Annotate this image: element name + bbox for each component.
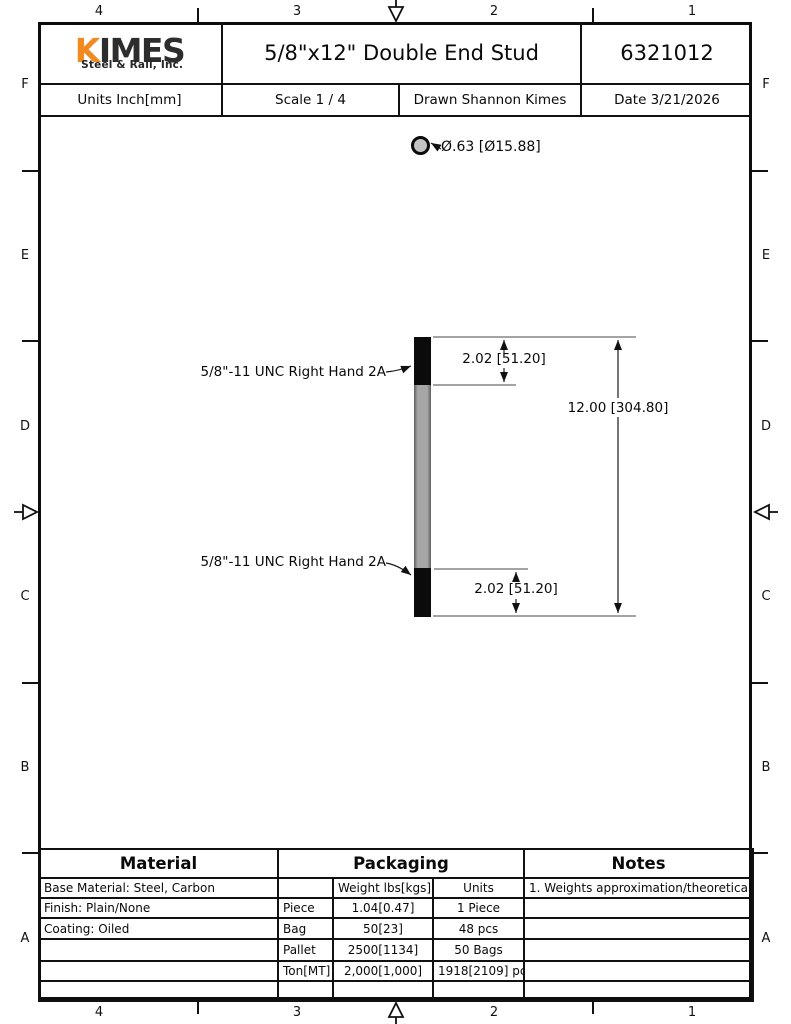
table-row: Base Material: Steel, Carbon Weight lbs[… (39, 878, 753, 898)
ton-weight-cell: 2,000[1,000] (333, 961, 433, 981)
zone-col-top-3: 3 (277, 4, 317, 20)
logo-cell: KIMES Steel & Rail, Inc. (38, 22, 223, 83)
table-row: Coating: Oiled Bag 50[23] 48 pcs (39, 918, 753, 939)
piece-weight-cell: 1.04[0.47] (333, 898, 433, 918)
spec-table-header-row: Material Packaging Notes (39, 849, 753, 878)
ton-units-cell: 1918[2109] pcs (433, 961, 524, 981)
units-field: Units Inch[mm] (38, 85, 223, 115)
stud-shank (414, 385, 431, 568)
dim-overall-length: 12.00 [304.80] (560, 400, 676, 416)
zone-row-left-f: F (15, 77, 35, 93)
zone-col-top-4: 4 (79, 4, 119, 20)
zone-col-bottom-4: 4 (79, 1005, 119, 1021)
drawing-sheet: 4 3 2 1 4 3 2 1 F E D C B A F E D C B A … (0, 0, 791, 1024)
ton-label-cell: Ton[MT] (278, 961, 333, 981)
zone-row-right-f: F (756, 77, 776, 93)
empty-cell (524, 939, 753, 961)
zone-col-top-1: 1 (672, 4, 712, 20)
table-row: Finish: Plain/None Piece 1.04[0.47] 1 Pi… (39, 898, 753, 918)
packaging-header: Packaging (278, 849, 524, 878)
table-row: Ton[MT] 2,000[1,000] 1918[2109] pcs (39, 961, 753, 981)
pallet-label-cell: Pallet (278, 939, 333, 961)
stud-end-view-circle (411, 136, 430, 155)
dim-thread-length-top: 2.02 [51.20] (448, 351, 560, 367)
zone-col-bottom-3: 3 (277, 1005, 317, 1021)
piece-label-cell: Piece (278, 898, 333, 918)
table-row: Pallet 2500[1134] 50 Bags (39, 939, 753, 961)
zone-row-right-c: C (756, 589, 776, 605)
zone-row-left-e: E (15, 248, 35, 264)
note-1-cell: 1. Weights approximation/theoretical. (524, 878, 753, 898)
drawn-by-field: Drawn Shannon Kimes (400, 85, 582, 115)
material-header: Material (39, 849, 278, 878)
zone-col-bottom-2: 2 (474, 1005, 514, 1021)
empty-cell (333, 981, 433, 1001)
dim-thread-length-bottom: 2.02 [51.20] (460, 581, 572, 597)
pallet-units-cell: 50 Bags (433, 939, 524, 961)
diameter-callout: Ø.63 [Ø15.88] (441, 139, 541, 155)
bag-units-cell: 48 pcs (433, 918, 524, 939)
empty-cell (524, 961, 753, 981)
zone-row-left-c: C (15, 589, 35, 605)
logo-subtitle: Steel & Rail, Inc. (81, 60, 184, 71)
title-block: KIMES Steel & Rail, Inc. 5/8"x12" Double… (38, 22, 752, 117)
empty-cell (278, 878, 333, 898)
zone-row-left-d: D (15, 419, 35, 435)
thread-callout-top: 5/8"-11 UNC Right Hand 2A (188, 364, 386, 380)
stud-threaded-section-top (414, 337, 431, 385)
finish-cell: Finish: Plain/None (39, 898, 278, 918)
drawing-title: 5/8"x12" Double End Stud (223, 22, 582, 83)
empty-cell (524, 918, 753, 939)
zone-row-right-d: D (756, 419, 776, 435)
zone-row-right-e: E (756, 248, 776, 264)
table-row (39, 981, 753, 1001)
bag-label-cell: Bag (278, 918, 333, 939)
zone-row-right-b: B (756, 760, 776, 776)
empty-cell (524, 898, 753, 918)
date-field: Date 3/21/2026 (582, 85, 752, 115)
zone-col-top-2: 2 (474, 4, 514, 20)
weight-column-header: Weight lbs[kgs] (333, 878, 433, 898)
units-column-header: Units (433, 878, 524, 898)
zone-col-bottom-1: 1 (672, 1005, 712, 1021)
empty-cell (39, 961, 278, 981)
part-number: 6321012 (582, 22, 752, 83)
stud-threaded-section-bottom (414, 568, 431, 617)
empty-cell (39, 939, 278, 961)
empty-cell (524, 981, 753, 1001)
scale-field: Scale 1 / 4 (223, 85, 400, 115)
empty-cell (278, 981, 333, 1001)
zone-row-left-a: A (15, 931, 35, 947)
pallet-weight-cell: 2500[1134] (333, 939, 433, 961)
piece-units-cell: 1 Piece (433, 898, 524, 918)
spec-table: Material Packaging Notes Base Material: … (38, 848, 754, 1002)
base-material-cell: Base Material: Steel, Carbon (39, 878, 278, 898)
kimes-logo: KIMES Steel & Rail, Inc. (75, 34, 185, 71)
empty-cell (433, 981, 524, 1001)
notes-header: Notes (524, 849, 753, 878)
thread-callout-bottom: 5/8"-11 UNC Right Hand 2A (188, 554, 386, 570)
zone-row-right-a: A (756, 931, 776, 947)
coating-cell: Coating: Oiled (39, 918, 278, 939)
empty-cell (39, 981, 278, 1001)
bag-weight-cell: 50[23] (333, 918, 433, 939)
zone-row-left-b: B (15, 760, 35, 776)
